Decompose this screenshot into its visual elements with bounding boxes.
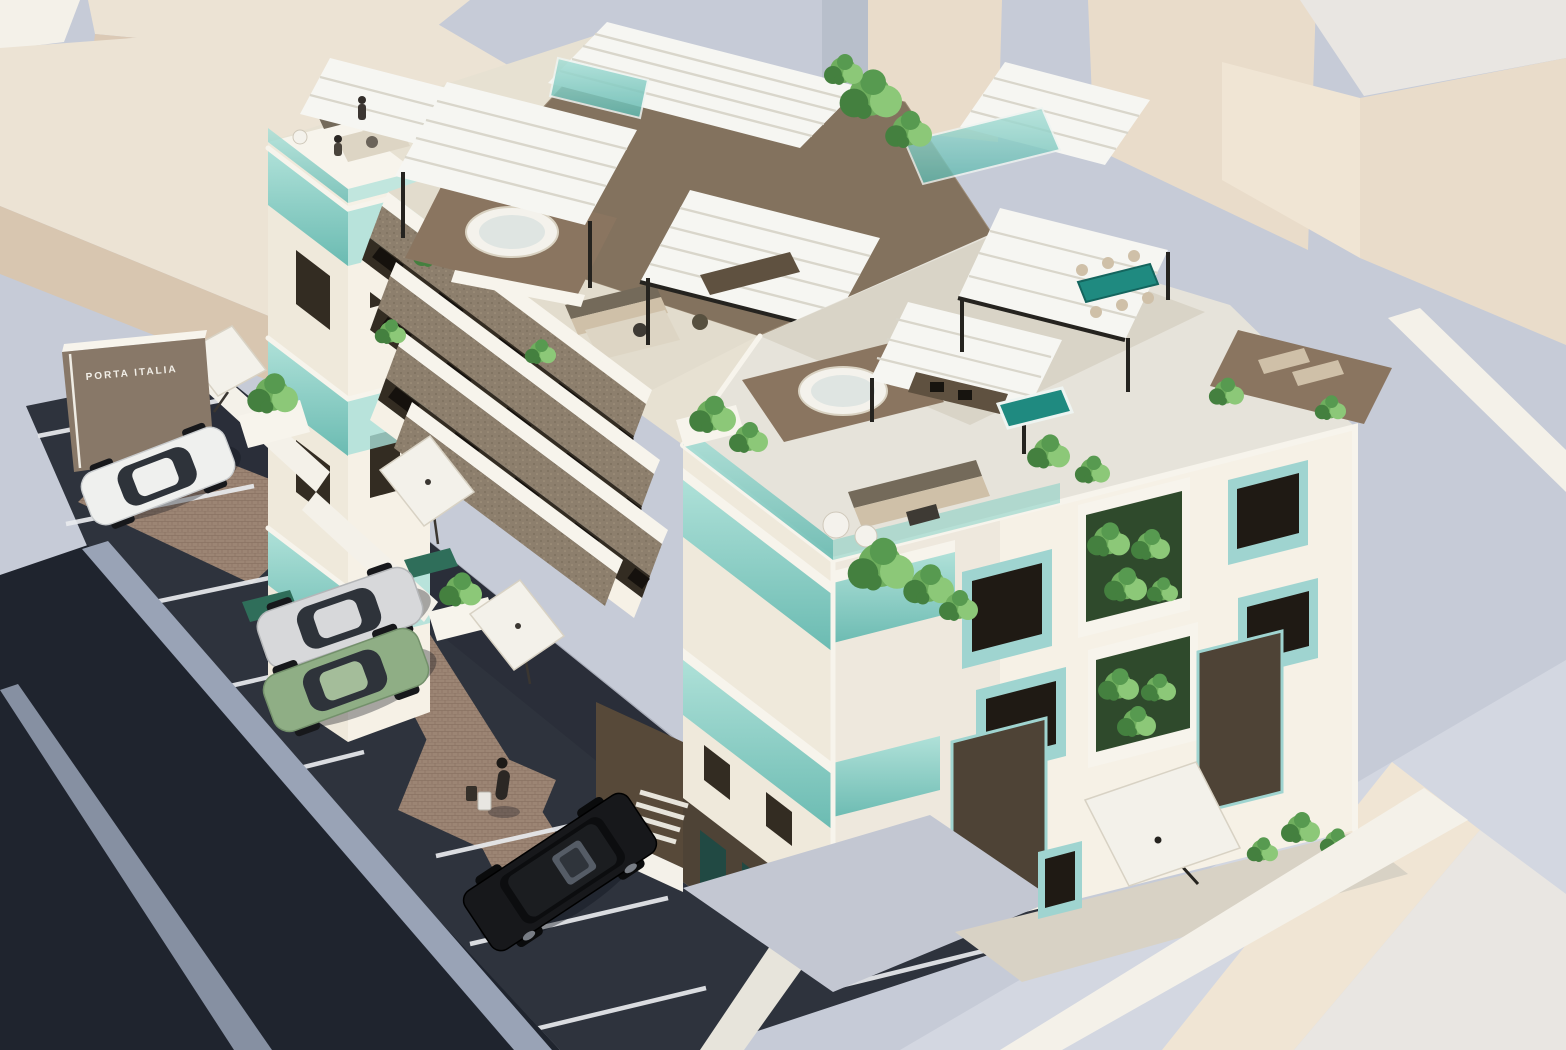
render-canvas: PORTA ITALIA [0,0,1566,1050]
terrace-chair [692,314,708,330]
suitcase [478,792,491,810]
facade-planter-niche [1078,477,1190,638]
coffee-table [366,136,378,148]
side-table [633,323,647,337]
jacuzzi-water [479,215,545,249]
bag [466,786,477,801]
roof-person [358,96,366,120]
architectural-render: PORTA ITALIA [0,0,1566,1050]
roof-person [334,135,342,156]
ottoman [293,130,307,144]
